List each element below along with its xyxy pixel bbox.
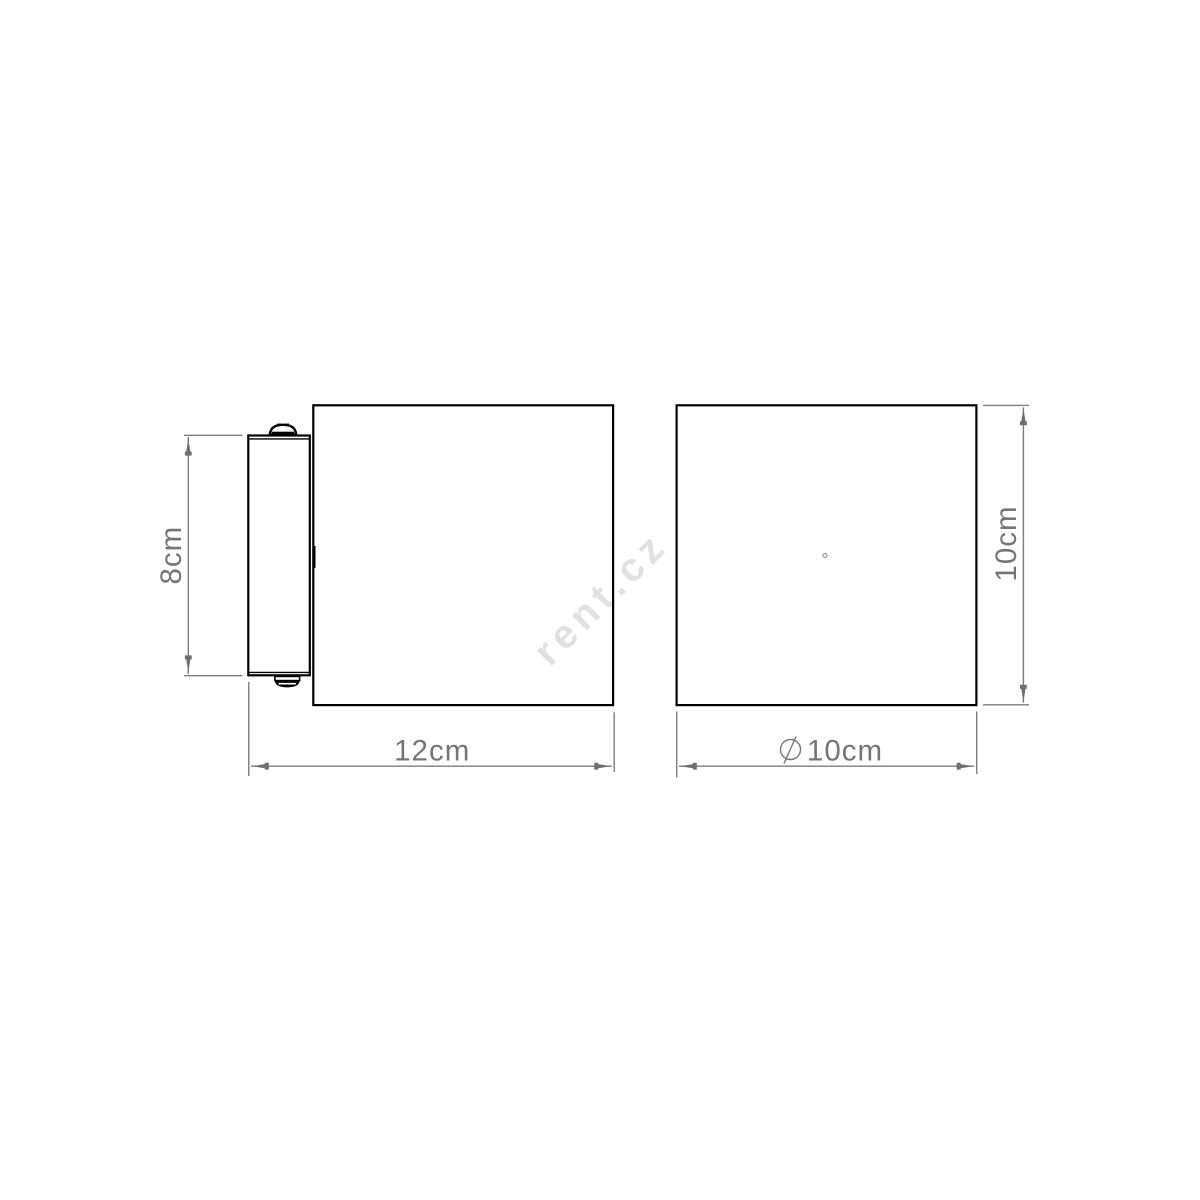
svg-text:12cm: 12cm — [394, 735, 470, 768]
svg-text:10cm: 10cm — [807, 735, 883, 768]
svg-text:8cm: 8cm — [155, 526, 188, 585]
svg-text:10cm: 10cm — [990, 505, 1023, 581]
